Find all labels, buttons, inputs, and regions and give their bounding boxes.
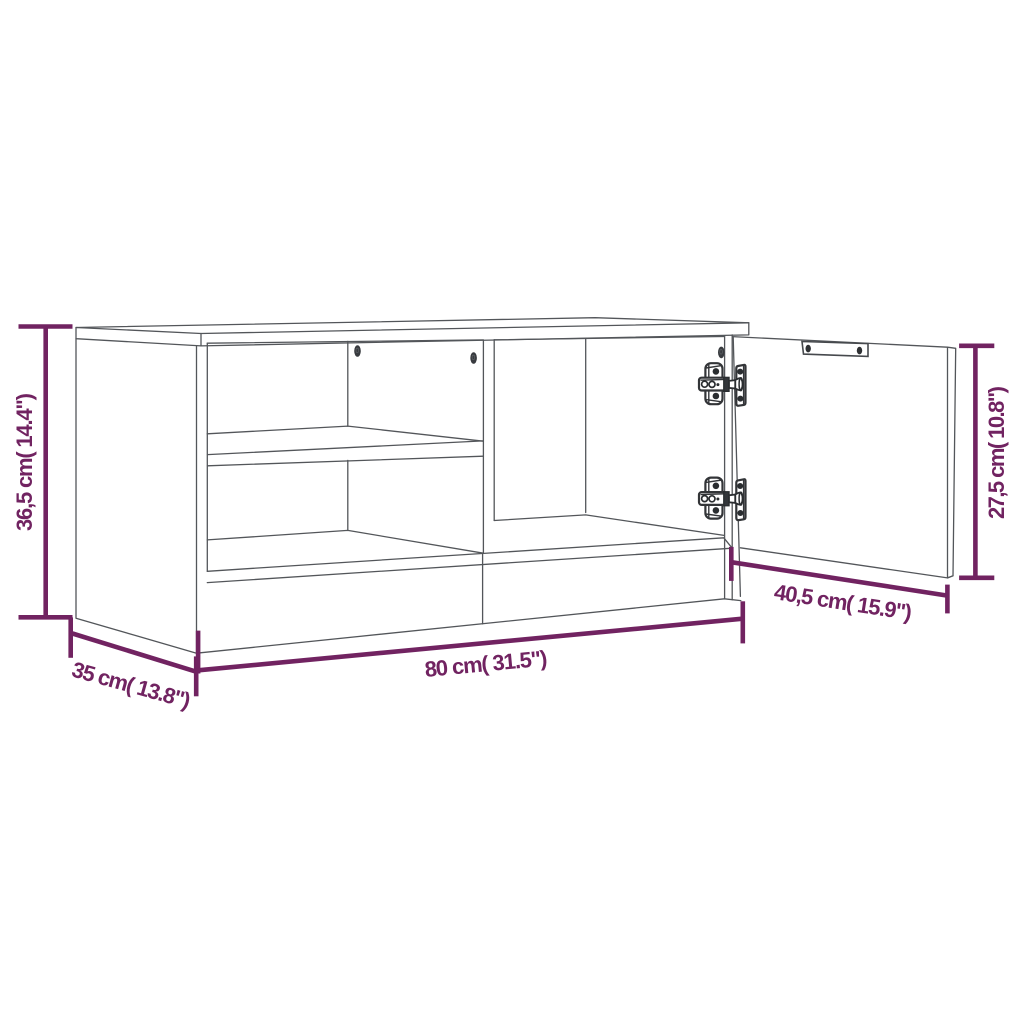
svg-text:36,5 cm( 14.4"): 36,5 cm( 14.4") [12,393,37,531]
svg-text:27,5 cm( 10.8"): 27,5 cm( 10.8") [984,386,1009,519]
